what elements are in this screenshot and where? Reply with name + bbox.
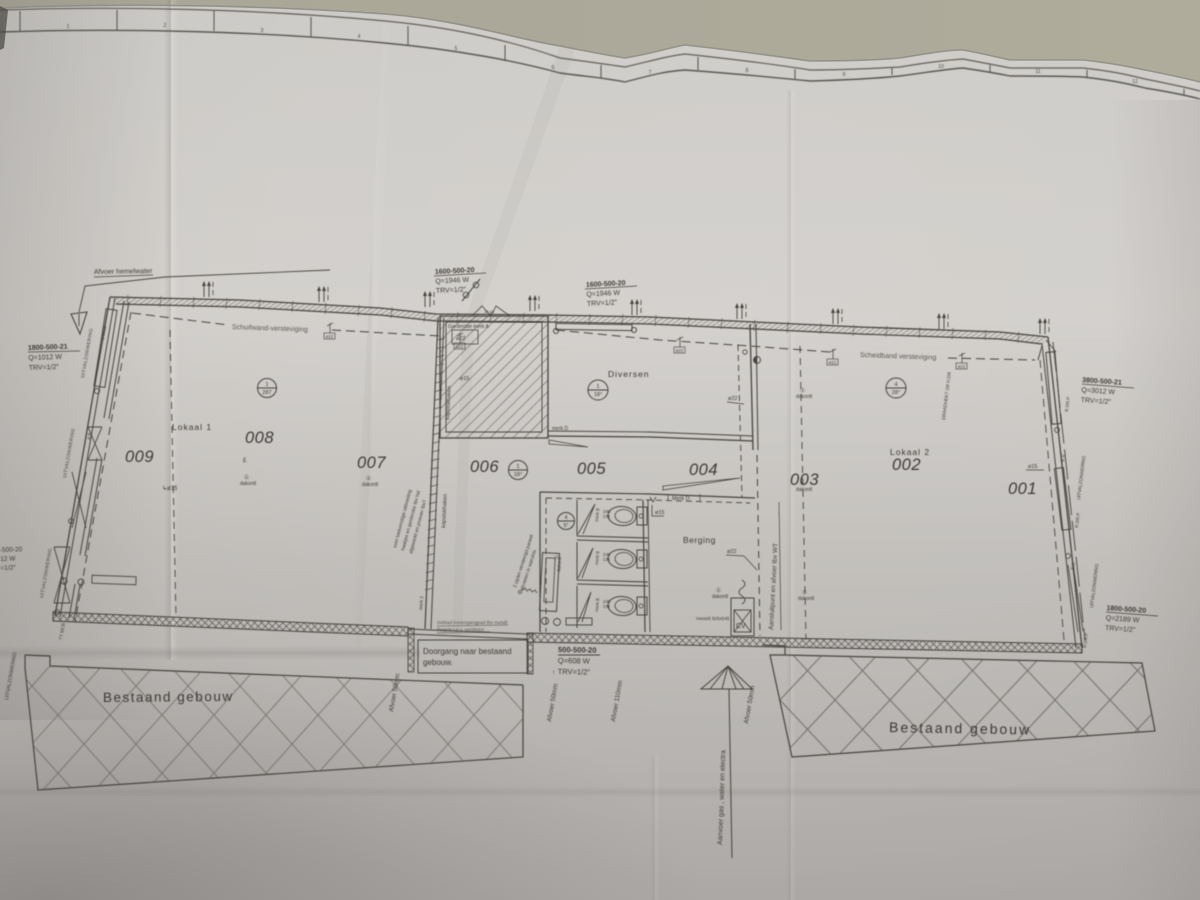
svg-text:-500-20: -500-20 <box>0 546 23 554</box>
svg-text:2: 2 <box>164 23 167 29</box>
svg-text:287: 287 <box>262 390 271 396</box>
svg-text:12 W: 12 W <box>0 555 16 563</box>
svg-text:Bestaand gebouw: Bestaand gebouw <box>889 719 1031 737</box>
svg-text:Ⓢ: Ⓢ <box>244 474 249 481</box>
svg-text:Q=608 W: Q=608 W <box>558 656 591 666</box>
svg-text:Ⓢ: Ⓢ <box>366 475 371 482</box>
svg-text:dakontl: dakontl <box>798 596 814 602</box>
svg-text:7: 7 <box>649 70 652 76</box>
svg-text:↑: ↑ <box>552 670 555 676</box>
svg-text:dakontl: dakontl <box>796 487 812 493</box>
svg-text:007: 007 <box>357 454 386 472</box>
svg-text:008: 008 <box>245 429 274 447</box>
svg-text:5: 5 <box>455 46 458 52</box>
svg-text:10: 10 <box>938 64 944 70</box>
svg-text:CV: CV <box>736 623 746 630</box>
svg-text:9: 9 <box>843 72 846 78</box>
svg-text:-ø15: -ø15 <box>458 376 469 382</box>
svg-text:ø22: ø22 <box>728 396 737 402</box>
svg-text:Q=1012 W: Q=1012 W <box>28 354 62 362</box>
svg-text:1: 1 <box>596 384 599 390</box>
svg-text:Berging: Berging <box>683 535 716 545</box>
svg-text:009: 009 <box>125 448 154 466</box>
svg-text:merk D: merk D <box>552 426 569 432</box>
svg-text:dakontl: dakontl <box>240 481 256 487</box>
svg-text:Lokaal 1: Lokaal 1 <box>172 422 212 432</box>
svg-text:12: 12 <box>1132 79 1138 85</box>
svg-text:Afvoer hemelwater: Afvoer hemelwater <box>94 268 153 276</box>
svg-text:002: 002 <box>892 456 921 474</box>
svg-text:Ⓢ: Ⓢ <box>802 589 807 596</box>
svg-text:ø22: ø22 <box>676 348 684 353</box>
svg-text:CM: CM <box>603 514 610 519</box>
svg-text:Garderobe merk A: Garderobe merk A <box>448 324 490 330</box>
svg-text:ø22: ø22 <box>456 336 465 342</box>
svg-text:1: 1 <box>516 464 519 470</box>
svg-text:gebouw.: gebouw. <box>423 658 453 667</box>
svg-text:Diversen: Diversen <box>608 369 650 379</box>
svg-text:4: 4 <box>894 382 897 388</box>
svg-text:3: 3 <box>261 28 264 34</box>
svg-text:ø22: ø22 <box>326 334 334 339</box>
svg-text:18°: 18° <box>514 472 522 478</box>
svg-text:Doorgang naar bestaand: Doorgang naar bestaand <box>423 647 512 656</box>
svg-text:Heetelt 505x545: Heetelt 505x545 <box>696 616 730 621</box>
svg-text:ø22: ø22 <box>727 549 736 555</box>
svg-text:4: 4 <box>358 34 361 40</box>
svg-text:ø15: ø15 <box>1028 464 1037 470</box>
svg-text:005: 005 <box>577 460 606 478</box>
svg-text:dakontl: dakontl <box>362 482 378 488</box>
svg-text:18°: 18° <box>594 392 602 398</box>
svg-text:B.V.: B.V. <box>1070 561 1076 570</box>
svg-text:6: 6 <box>552 65 555 71</box>
svg-text:dakontl: dakontl <box>712 594 728 600</box>
svg-text:500-500-20: 500-500-20 <box>558 645 597 655</box>
svg-text:5°: 5° <box>564 523 569 529</box>
svg-text:ø22: ø22 <box>958 364 966 369</box>
svg-text:8: 8 <box>746 68 749 74</box>
svg-text:B.V.: B.V. <box>1060 453 1066 462</box>
svg-text:4: 4 <box>565 515 568 521</box>
svg-text:006: 006 <box>470 458 499 476</box>
svg-text:1: 1 <box>67 24 70 30</box>
svg-text:TRV=1/2″: TRV=1/2″ <box>29 364 60 372</box>
svg-text:004: 004 <box>689 461 718 479</box>
svg-text:ø22: ø22 <box>829 360 837 365</box>
svg-text:18 18: 18 18 <box>484 309 495 314</box>
svg-text:CM: CM <box>603 557 610 562</box>
svg-text:CM: CM <box>603 604 610 609</box>
svg-text:Ⓢ: Ⓢ <box>553 555 560 561</box>
svg-text:↳ø15: ↳ø15 <box>162 485 178 492</box>
svg-text:Bestaand gebouw: Bestaand gebouw <box>103 689 234 705</box>
svg-text:Merk D: Merk D <box>672 496 690 502</box>
svg-text:Ⓢ: Ⓢ <box>716 587 721 594</box>
svg-text:1800-500-21: 1800-500-21 <box>28 344 68 352</box>
svg-text:=1/2″: =1/2″ <box>0 564 16 572</box>
svg-text:TRV=1/2″: TRV=1/2″ <box>558 667 591 677</box>
svg-text:28°: 28° <box>892 390 900 396</box>
svg-text:11: 11 <box>1035 69 1040 75</box>
svg-text:1: 1 <box>265 382 268 388</box>
svg-text:ø15: ø15 <box>655 510 664 516</box>
svg-text:dakontl: dakontl <box>796 394 812 400</box>
svg-text:001: 001 <box>1008 480 1037 498</box>
